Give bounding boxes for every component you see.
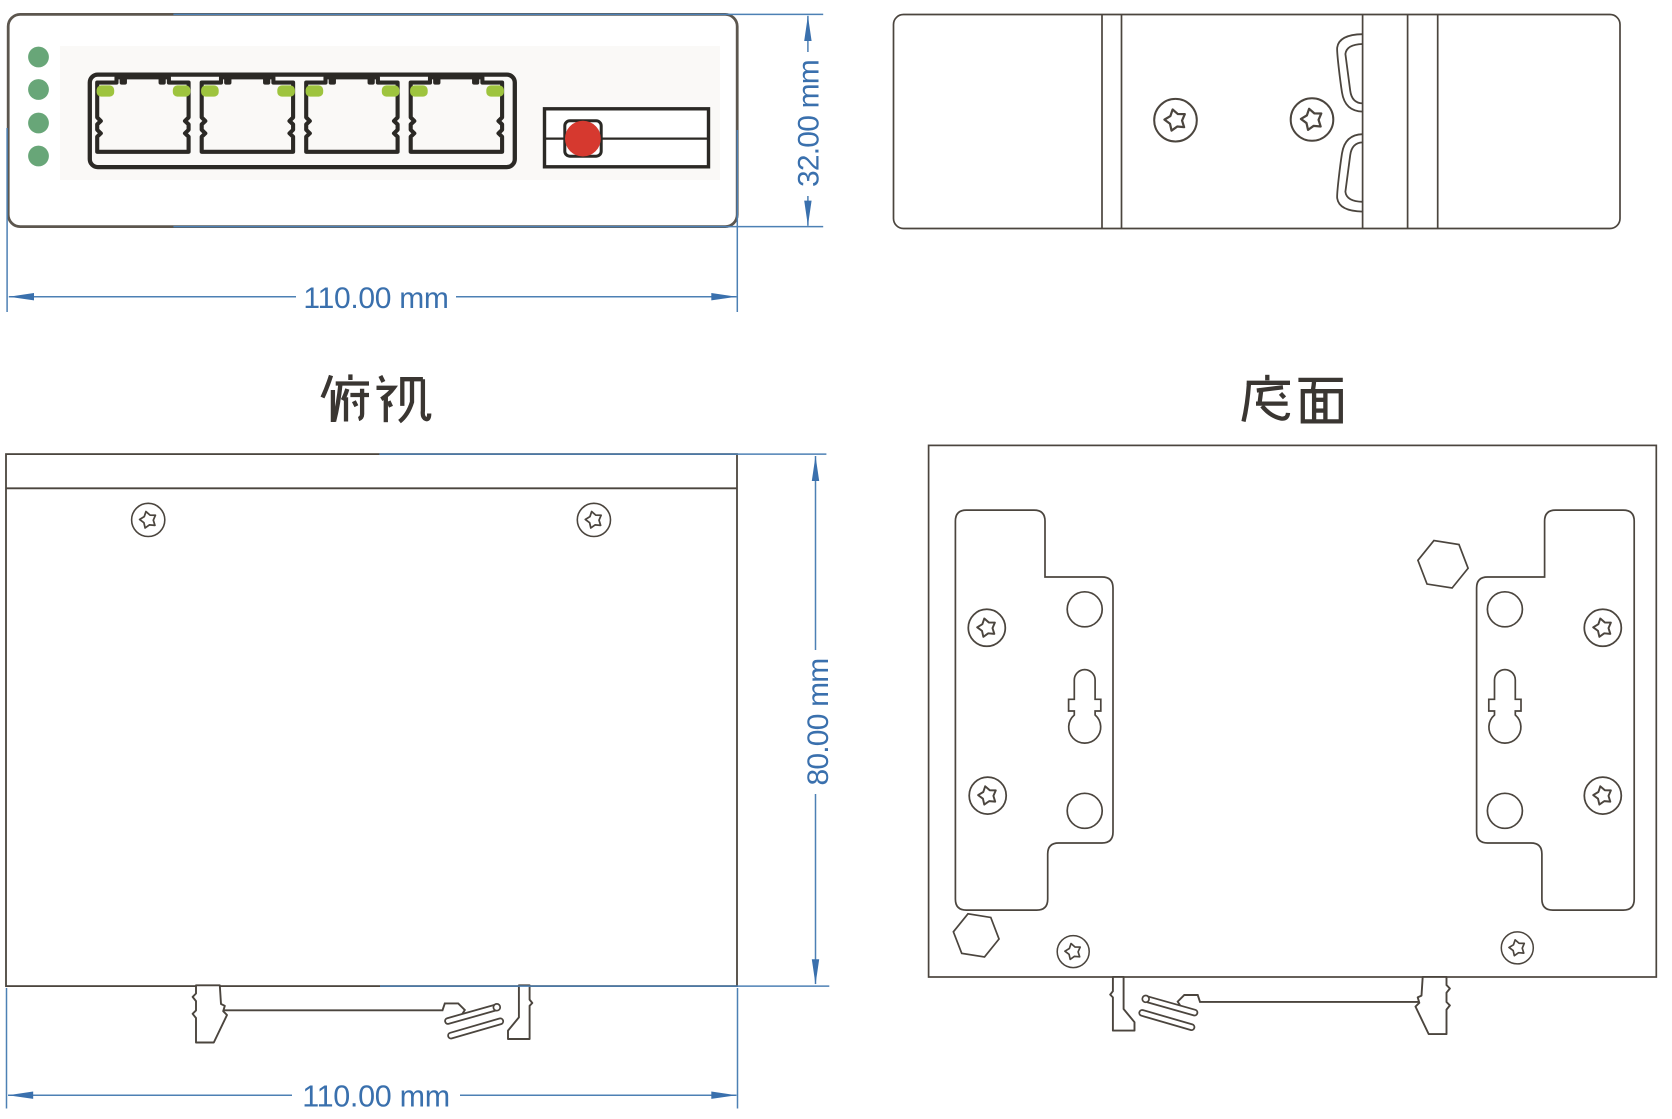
svg-text:80.00 mm: 80.00 mm — [802, 659, 835, 786]
svg-text:32.00 mm: 32.00 mm — [793, 60, 826, 187]
svg-text:110.00 mm: 110.00 mm — [302, 1080, 450, 1114]
svg-text:110.00 mm: 110.00 mm — [303, 282, 448, 315]
